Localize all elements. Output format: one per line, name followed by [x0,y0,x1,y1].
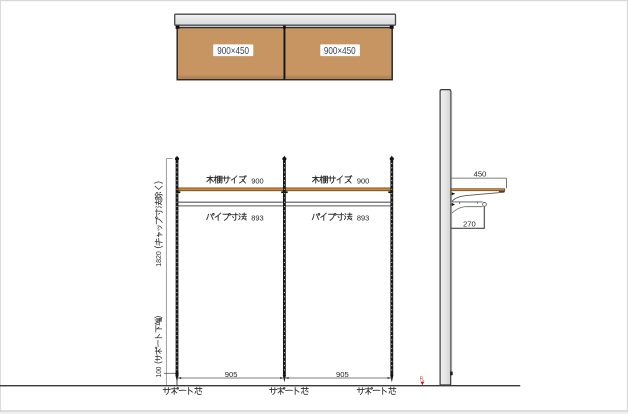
svg-text:900: 900 [251,176,263,185]
svg-text:893: 893 [357,213,369,222]
svg-text:450: 450 [474,170,487,179]
svg-text:900: 900 [357,176,369,185]
svg-text:270: 270 [463,220,476,229]
svg-text:100: 100 [154,367,163,378]
svg-text:905: 905 [225,370,238,379]
svg-text:1820: 1820 [154,251,163,267]
svg-text:893: 893 [251,213,263,222]
svg-text:FL: FL [420,376,425,382]
svg-text:900×450: 900×450 [217,46,249,57]
svg-text:905: 905 [336,370,349,379]
svg-text:900×450: 900×450 [324,46,356,57]
